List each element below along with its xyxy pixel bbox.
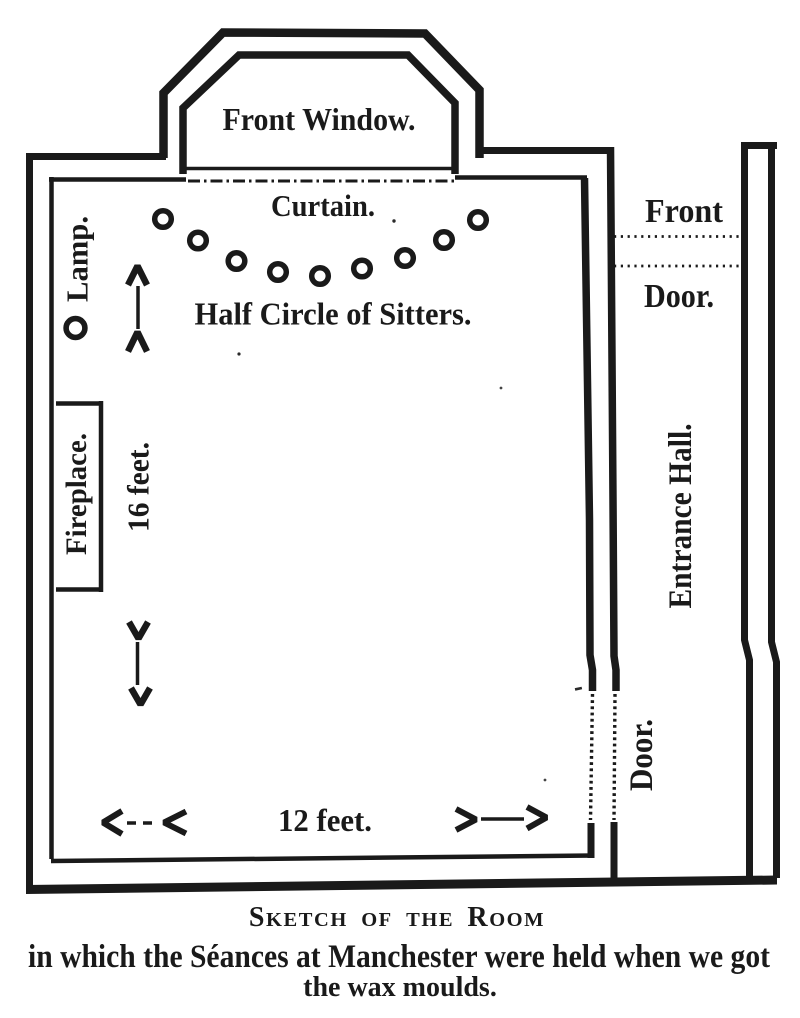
svg-text:Curtain.: Curtain.	[271, 188, 375, 223]
svg-text:Half Circle of Sitters.: Half Circle of Sitters.	[195, 296, 472, 332]
svg-text:Front: Front	[645, 193, 724, 230]
svg-text:Door.: Door.	[644, 278, 714, 315]
svg-text:in which the Séances at Manche: in which the Séances at Manchester were …	[28, 939, 770, 975]
svg-text:Lamp.: Lamp.	[60, 216, 95, 302]
svg-text:SKETCH OF THE ROOM: SKETCH OF THE ROOM	[249, 902, 545, 933]
svg-text:Front Window.: Front Window.	[223, 101, 416, 137]
svg-text:16 feet.: 16 feet.	[121, 442, 156, 532]
svg-text:the wax moulds.: the wax moulds.	[303, 972, 497, 1003]
svg-text:Entrance Hall.: Entrance Hall.	[663, 424, 699, 609]
svg-text:Door.: Door.	[624, 719, 660, 791]
svg-text:12 feet.: 12 feet.	[278, 802, 372, 838]
svg-text:Fireplace.: Fireplace.	[60, 433, 93, 555]
